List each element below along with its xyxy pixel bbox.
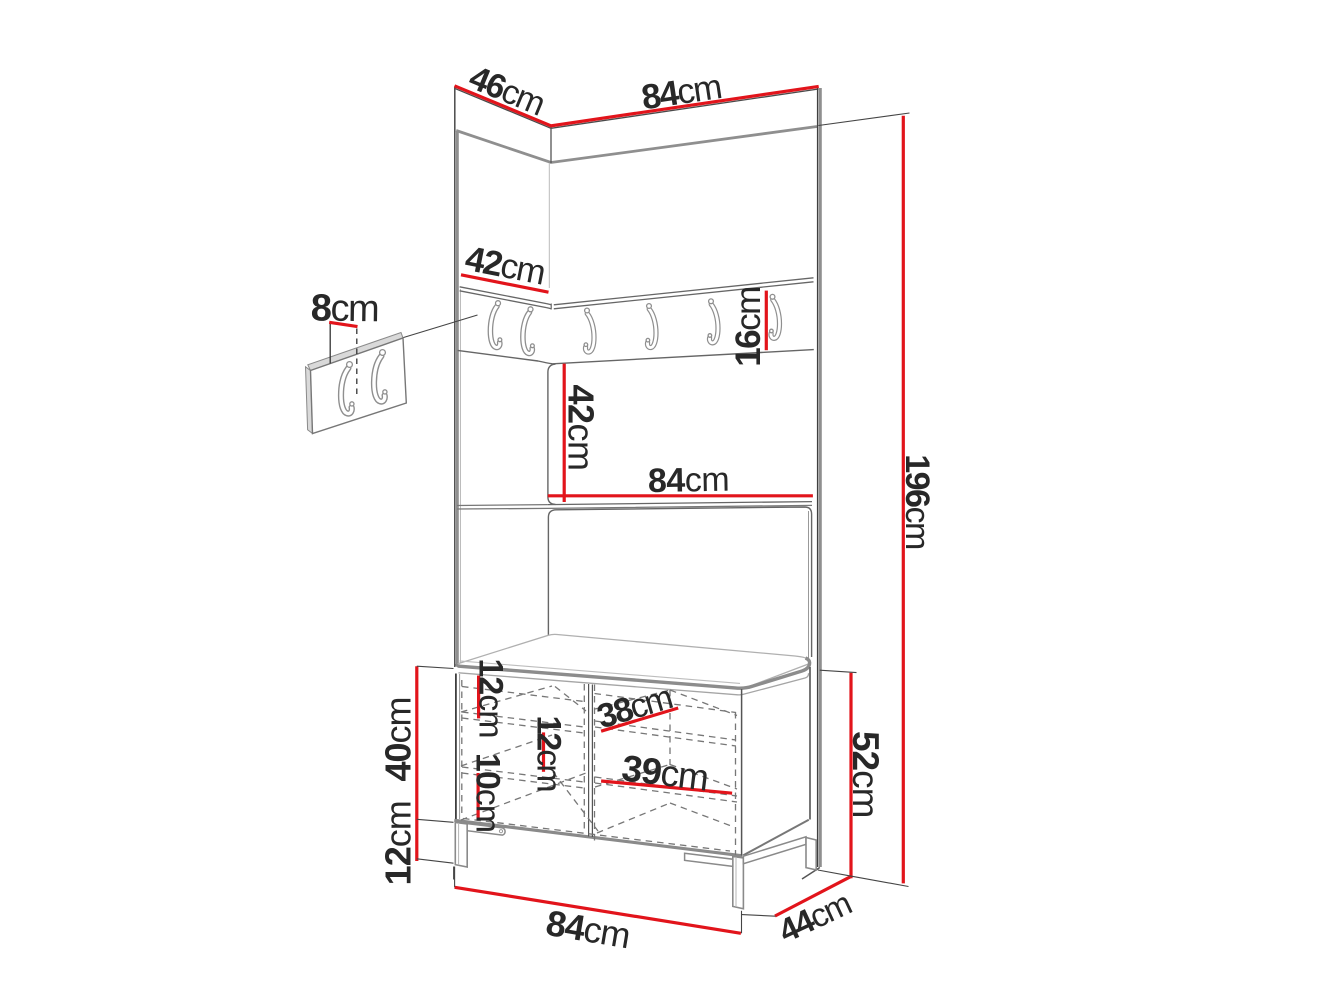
svg-text:12cm: 12cm [530, 715, 568, 791]
svg-text:12cm: 12cm [378, 801, 419, 885]
svg-text:40cm: 40cm [378, 697, 419, 781]
svg-text:196cm: 196cm [898, 454, 936, 549]
svg-text:42cm: 42cm [560, 384, 601, 470]
svg-text:8cm: 8cm [311, 287, 379, 330]
svg-text:10cm: 10cm [469, 753, 507, 832]
svg-text:16cm: 16cm [729, 287, 768, 367]
svg-text:84cm: 84cm [648, 461, 730, 500]
svg-text:52cm: 52cm [845, 731, 886, 817]
svg-text:12cm: 12cm [472, 658, 510, 737]
